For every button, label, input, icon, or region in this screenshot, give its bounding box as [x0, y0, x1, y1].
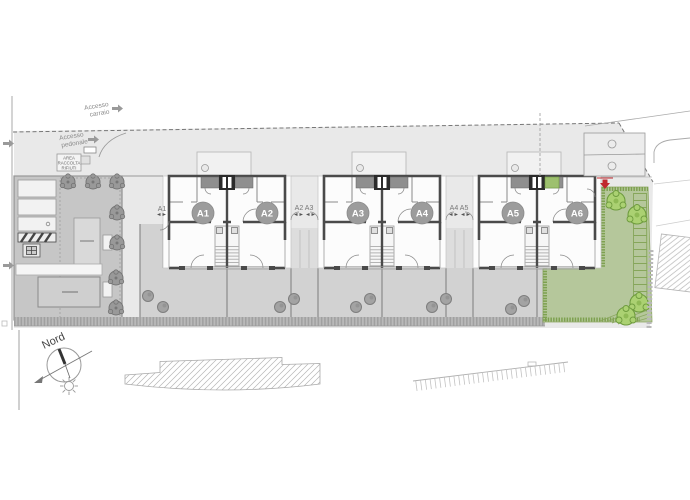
terrain-hatch-right: [413, 362, 568, 386]
unit-marker-a2[interactable]: A2: [256, 202, 278, 224]
hedge-strip: [14, 317, 545, 326]
shrub-icon: [506, 304, 517, 315]
equipment-box: [23, 244, 40, 257]
access-carraio-label: Accesso carraio: [84, 101, 111, 119]
a6-entrance-porch-highlight: [545, 177, 559, 188]
visitor-stalls: [584, 133, 645, 176]
north-label: Nord: [40, 331, 67, 352]
site-plan: A1 A2 A3 A4 A5 A6 A1 A2 A3 A4 A5: [0, 0, 690, 500]
shrub-icon: [143, 291, 154, 302]
shrub-icon: [427, 302, 438, 313]
walk-strip: [16, 264, 102, 275]
carport-stall: [18, 199, 56, 215]
svg-text:A1: A1: [197, 209, 210, 220]
shrub-icon: [275, 302, 286, 313]
ramp-hatch: [18, 233, 56, 242]
unit-marker-a4[interactable]: A4: [411, 202, 433, 224]
svg-text:A3: A3: [352, 209, 364, 220]
parking-area: [14, 174, 125, 320]
north-compass: Nord: [34, 331, 92, 395]
svg-text:A4: A4: [416, 209, 429, 220]
carport-stall: [18, 217, 56, 231]
unit-marker-a1[interactable]: A1: [192, 202, 214, 224]
entrance-label-a2-a3: A2 A3: [295, 205, 314, 212]
unit-marker-a5[interactable]: A5: [502, 202, 524, 224]
shrub-icon: [519, 296, 530, 307]
unit-marker-a6[interactable]: A6: [566, 202, 588, 224]
svg-text:A5: A5: [507, 209, 520, 220]
shrub-icon: [289, 294, 300, 305]
unit-marker-a3[interactable]: A3: [347, 202, 369, 224]
compass-arrow-icon: [34, 376, 43, 383]
carraio-arrow-icon: [112, 105, 123, 113]
svg-text:RIFIUTI: RIFIUTI: [61, 166, 76, 171]
site-plan-page: A1 A2 A3 A4 A5 A6 A1 A2 A3 A4 A5: [0, 0, 690, 500]
neighbor-building: [655, 234, 690, 292]
shrub-icon: [158, 302, 169, 313]
entrance-label-a1: A1: [158, 206, 167, 213]
svg-text:A2: A2: [261, 209, 273, 220]
gate: [84, 147, 96, 153]
shrub-icon: [365, 294, 376, 305]
svg-text:A6: A6: [571, 209, 583, 220]
entrance-label-a4-a5: A4 A5: [450, 205, 469, 212]
north-needle: [59, 349, 65, 364]
sun-icon: [60, 377, 78, 395]
terrain-hatch-left: [125, 358, 320, 391]
shrub-icon: [441, 294, 452, 305]
carport-stall: [18, 180, 56, 197]
shrub-icon: [351, 302, 362, 313]
